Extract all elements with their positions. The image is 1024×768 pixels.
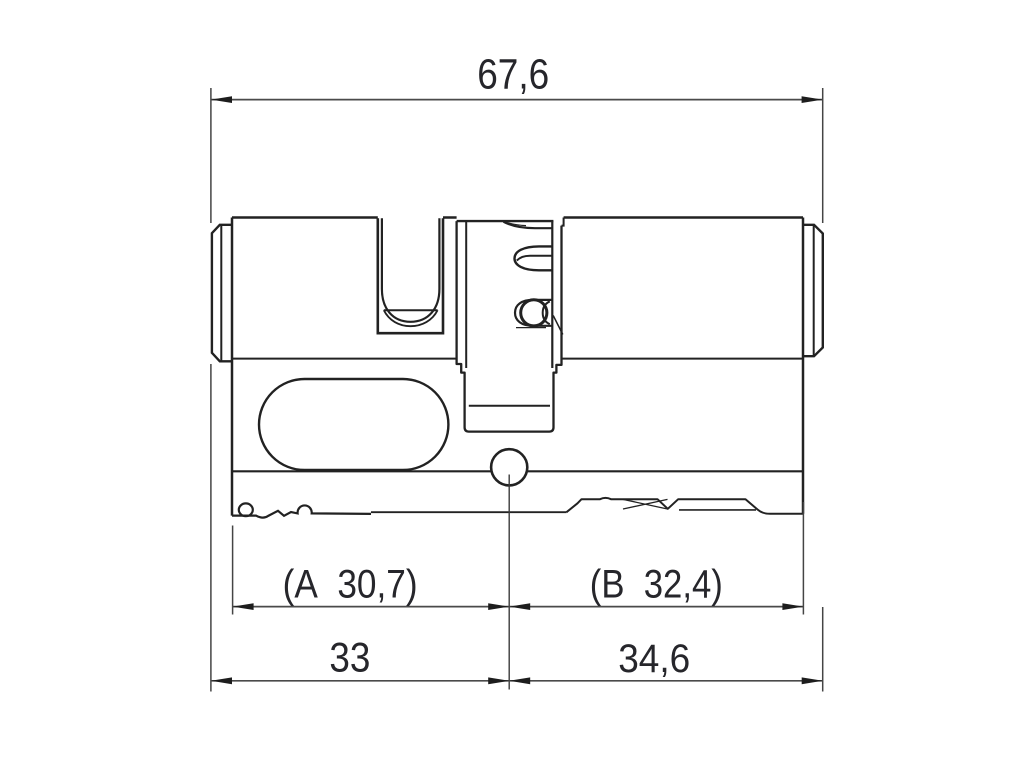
- svg-text:34,6: 34,6: [618, 637, 690, 681]
- svg-text:33: 33: [329, 634, 370, 681]
- svg-text:(A 30,7): (A 30,7): [283, 562, 418, 606]
- svg-text:67,6: 67,6: [477, 50, 549, 98]
- svg-text:(B 32,4): (B 32,4): [590, 562, 723, 606]
